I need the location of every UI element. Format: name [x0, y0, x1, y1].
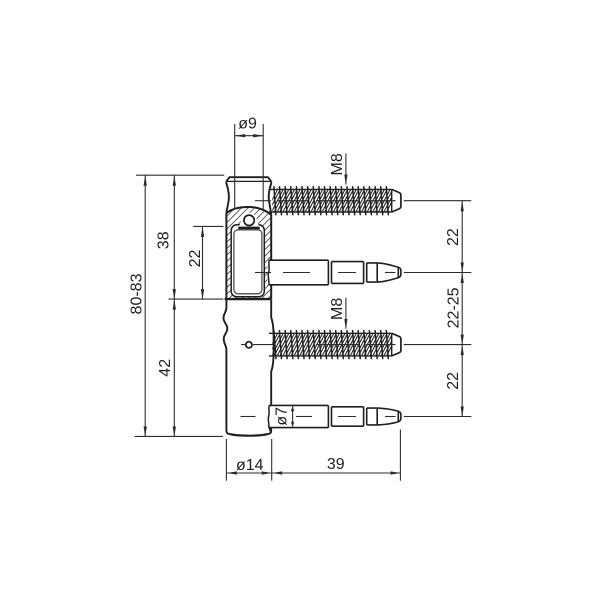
svg-text:42: 42 — [157, 359, 174, 377]
svg-text:22-25: 22-25 — [446, 287, 463, 328]
svg-text:38: 38 — [156, 231, 173, 249]
svg-text:39: 39 — [327, 456, 345, 473]
svg-text:ø9: ø9 — [238, 115, 257, 132]
svg-text:ø7: ø7 — [274, 407, 291, 426]
svg-text:M8: M8 — [329, 153, 346, 175]
svg-text:M8: M8 — [329, 298, 346, 320]
svg-text:22: 22 — [187, 250, 204, 268]
svg-text:22: 22 — [445, 228, 462, 246]
svg-text:22: 22 — [445, 372, 462, 390]
svg-text:80-83: 80-83 — [129, 273, 146, 314]
svg-text:ø14: ø14 — [236, 457, 264, 474]
